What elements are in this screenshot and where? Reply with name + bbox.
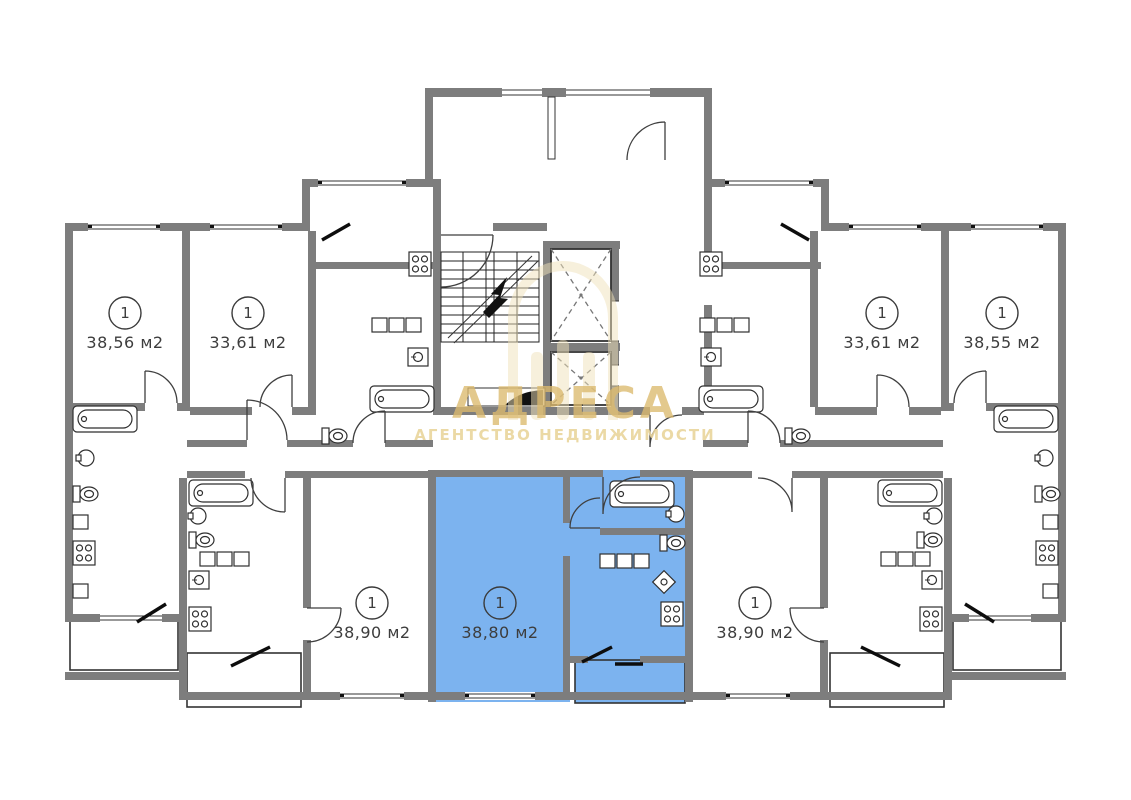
apartment-area: 38,90 м2 — [333, 623, 410, 642]
watermark-subtitle: АГЕНТСТВО НЕДВИЖИМОСТИ — [414, 426, 715, 444]
kitchen-counter — [406, 318, 421, 332]
floor-plan-page: 1 38,56 м2 1 33,61 м2 1 33,61 м2 1 38,55… — [0, 0, 1131, 800]
kitchen-counter — [881, 552, 896, 566]
kitchen-counter — [734, 318, 749, 332]
kitchen-counter — [73, 584, 88, 598]
apartment-number: 1 — [495, 594, 505, 612]
kitchen-counter — [389, 318, 404, 332]
balcony-right-outer — [953, 620, 1061, 670]
apartment-label-bottom-right[interactable]: 1 38,90 м2 — [716, 587, 793, 642]
window — [969, 614, 1031, 622]
floor-plan-svg: 1 38,56 м2 1 33,61 м2 1 33,61 м2 1 38,55… — [0, 0, 1131, 800]
apartment-label-top-left-outer[interactable]: 1 38,56 м2 — [86, 297, 163, 352]
apartment-area: 33,61 м2 — [843, 333, 920, 352]
apartment-label-top-right-outer[interactable]: 1 38,55 м2 — [963, 297, 1040, 352]
stove-icon — [661, 602, 683, 626]
window — [210, 223, 282, 231]
apartment-area: 33,61 м2 — [209, 333, 286, 352]
toilet-icon — [1035, 486, 1060, 502]
sink-icon — [188, 508, 206, 524]
window — [725, 179, 813, 187]
kitchen-counter — [200, 552, 215, 566]
bathtub-icon — [610, 481, 674, 507]
kitchen-counter — [372, 318, 387, 332]
stove-icon — [189, 607, 211, 631]
kitchen-counter — [217, 552, 232, 566]
bathtub-icon — [994, 406, 1058, 432]
toilet-icon — [73, 486, 98, 502]
kitchen-counter — [600, 554, 615, 568]
apartment-label-top-right-inner[interactable]: 1 33,61 м2 — [843, 297, 920, 352]
toilet-icon — [322, 428, 347, 444]
staircase — [441, 252, 539, 343]
bathtub-icon — [878, 480, 942, 506]
kitchen-counter — [1043, 584, 1058, 598]
bathtub-icon — [699, 386, 763, 412]
window — [502, 88, 542, 97]
kitchen-counter — [634, 554, 649, 568]
watermark-title: АДРЕСА — [452, 378, 678, 429]
kitchen-sink-icon — [189, 571, 209, 589]
window — [726, 692, 790, 700]
kitchen-counter — [617, 554, 632, 568]
kitchen-counter — [915, 552, 930, 566]
stove-icon — [920, 607, 942, 631]
stove-icon — [1036, 541, 1058, 565]
kitchen-counter — [1043, 515, 1058, 529]
apartment-number: 1 — [750, 594, 760, 612]
apartment-number: 1 — [367, 594, 377, 612]
window — [340, 692, 404, 700]
bathtub-icon — [189, 480, 253, 506]
kitchen-counter — [234, 552, 249, 566]
sink-icon — [76, 450, 94, 466]
apartment-area: 38,55 м2 — [963, 333, 1040, 352]
apartment-number: 1 — [877, 304, 887, 322]
sink-icon — [1035, 450, 1053, 466]
toilet-icon — [785, 428, 810, 444]
kitchen-sink-icon — [922, 571, 942, 589]
apartment-number: 1 — [243, 304, 253, 322]
bathtub-icon — [73, 406, 137, 432]
toilet-icon — [917, 532, 942, 548]
window — [971, 223, 1043, 231]
window — [849, 223, 921, 231]
kitchen-sink-icon — [408, 348, 428, 366]
toilet-icon — [660, 535, 685, 551]
kitchen-counter — [898, 552, 913, 566]
stair-direction-line — [448, 256, 538, 343]
apartment-number: 1 — [997, 304, 1007, 322]
window — [465, 692, 535, 700]
window — [100, 614, 162, 622]
stove-icon — [73, 541, 95, 565]
window — [566, 88, 650, 97]
kitchen-counter — [717, 318, 732, 332]
apartment-label-top-left-inner[interactable]: 1 33,61 м2 — [209, 297, 286, 352]
bathtub-icon — [370, 386, 434, 412]
stove-icon — [409, 252, 431, 276]
kitchen-sink-icon — [701, 348, 721, 366]
apartment-area: 38,56 м2 — [86, 333, 163, 352]
apartment-label-bottom-left[interactable]: 1 38,90 м2 — [333, 587, 410, 642]
apartment-area: 38,80 м2 — [461, 623, 538, 642]
kitchen-counter — [700, 318, 715, 332]
window — [318, 179, 406, 187]
apartment-area: 38,90 м2 — [716, 623, 793, 642]
window — [88, 223, 160, 231]
sink-icon — [924, 508, 942, 524]
stove-icon — [700, 252, 722, 276]
vestibule-partition — [548, 97, 555, 159]
apartment-number: 1 — [120, 304, 130, 322]
kitchen-counter — [73, 515, 88, 529]
toilet-icon — [189, 532, 214, 548]
balcony-left-outer — [70, 620, 178, 670]
